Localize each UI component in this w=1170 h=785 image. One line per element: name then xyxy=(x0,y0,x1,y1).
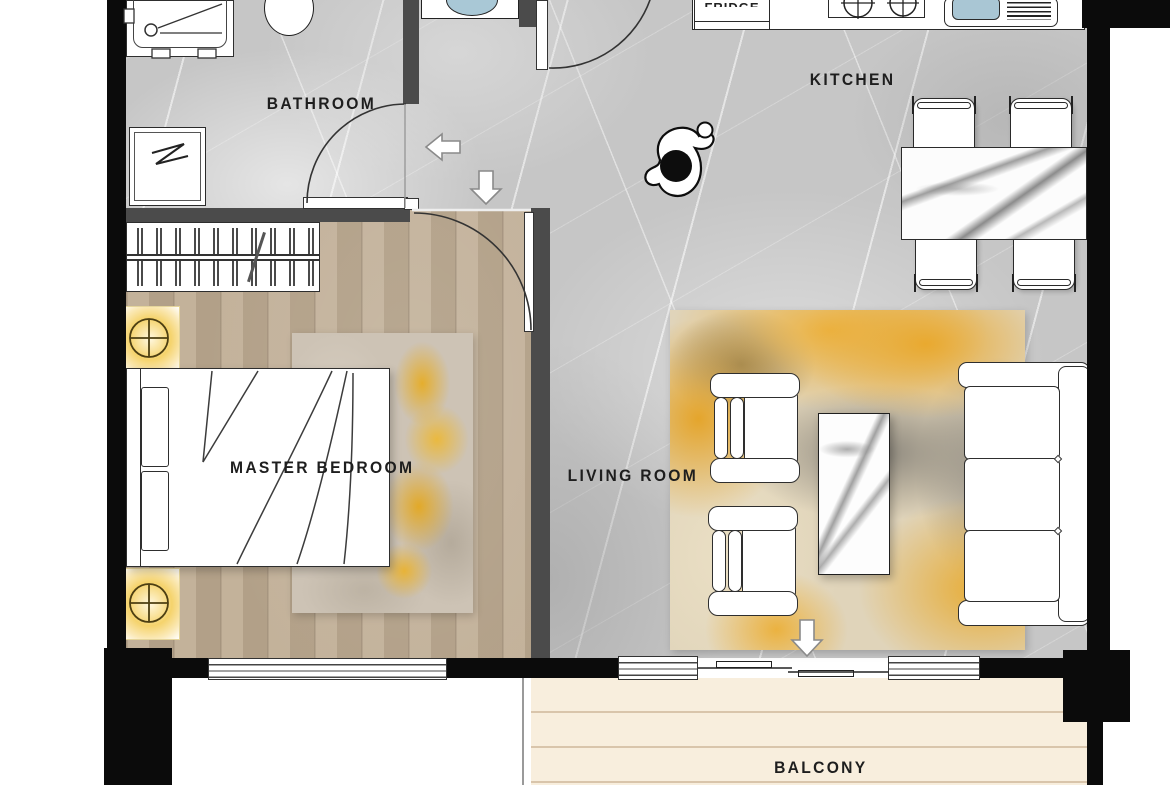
person-head xyxy=(660,150,692,182)
bathroom-door-arc xyxy=(307,104,406,203)
lamp-icon xyxy=(130,584,168,622)
room-label-master-bedroom: MASTER BEDROOM xyxy=(230,458,414,478)
floor-plan: FRIDGE xyxy=(0,0,1170,785)
arrow-left-icon xyxy=(426,134,460,160)
bedroom-door-arc xyxy=(414,213,531,330)
arrow-down-balcony-icon xyxy=(792,620,822,656)
room-label-bathroom: BATHROOM xyxy=(267,94,376,114)
room-label-living-room: LIVING ROOM xyxy=(568,466,698,486)
stove-burners xyxy=(841,0,919,19)
arrow-down-icon xyxy=(471,171,501,204)
room-label-kitchen: KITCHEN xyxy=(810,70,896,90)
shower-drain-detail xyxy=(124,4,222,58)
person-figure xyxy=(645,123,713,196)
lamp-icon xyxy=(130,319,168,357)
room-label-balcony: BALCONY xyxy=(774,758,867,778)
entrance-door-arc xyxy=(549,0,651,68)
water-heater-icon xyxy=(152,144,188,164)
linework-overlay xyxy=(0,0,1170,785)
